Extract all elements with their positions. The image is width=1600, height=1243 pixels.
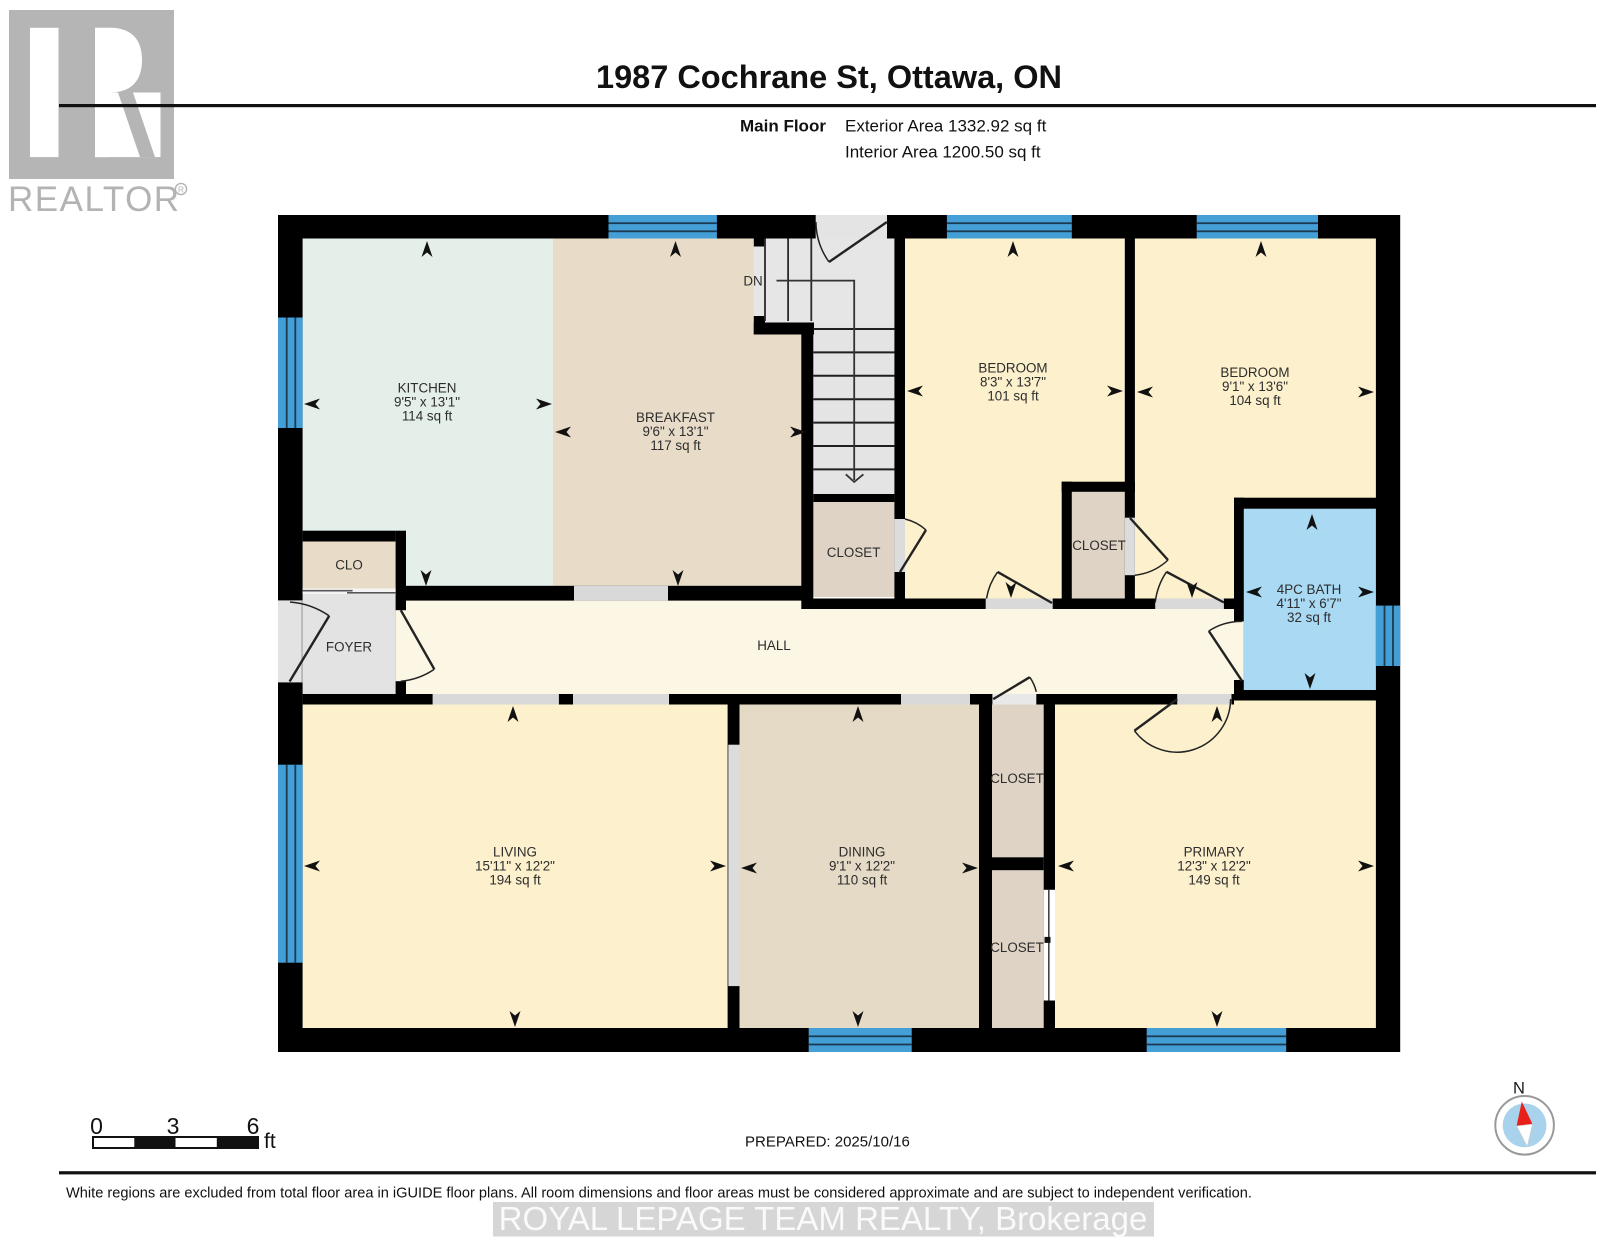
svg-text:8'3" x 13'7": 8'3" x 13'7" [980,375,1046,390]
svg-text:CLOSET: CLOSET [990,771,1044,786]
svg-text:3: 3 [167,1113,180,1139]
svg-text:CLO: CLO [335,558,363,573]
svg-text:9'1" x 12'2": 9'1" x 12'2" [829,859,895,874]
svg-text:LIVING: LIVING [493,845,537,860]
svg-text:0: 0 [90,1113,103,1139]
svg-text:114 sq ft: 114 sq ft [402,409,453,424]
svg-text:194 sq ft: 194 sq ft [489,873,541,888]
svg-text:ROYAL LEPAGE TEAM REALTY, Bro: ROYAL LEPAGE TEAM REALTY, Brokerage [499,1200,1148,1237]
svg-text:110 sq ft: 110 sq ft [837,873,888,888]
svg-text:CLOSET: CLOSET [990,940,1044,955]
svg-text:CLOSET: CLOSET [1072,538,1126,553]
svg-text:101 sq ft: 101 sq ft [987,389,1039,404]
svg-text:9'6" x 13'1": 9'6" x 13'1" [643,424,709,439]
svg-text:Exterior Area 1332.92 sq ft: Exterior Area 1332.92 sq ft [845,117,1047,136]
svg-text:CLOSET: CLOSET [827,545,881,560]
svg-text:6: 6 [247,1113,260,1139]
svg-text:117 sq ft: 117 sq ft [650,438,701,453]
svg-text:Main Floor: Main Floor [740,117,826,136]
svg-text:12'3" x 12'2": 12'3" x 12'2" [1177,859,1251,874]
svg-text:Interior Area 1200.50 sq ft: Interior Area 1200.50 sq ft [845,143,1041,162]
svg-text:32 sq ft: 32 sq ft [1287,610,1331,625]
svg-text:R: R [178,185,184,195]
svg-text:15'11" x 12'2": 15'11" x 12'2" [475,859,555,874]
svg-text:ft: ft [264,1130,276,1153]
svg-text:PREPARED: 2025/10/16: PREPARED: 2025/10/16 [745,1134,910,1151]
svg-text:KITCHEN: KITCHEN [398,381,457,396]
svg-text:HALL: HALL [757,638,791,653]
svg-text:1987 Cochrane St, Ottawa, ON: 1987 Cochrane St, Ottawa, ON [596,59,1062,95]
svg-text:9'5" x 13'1": 9'5" x 13'1" [394,395,460,410]
svg-text:149 sq ft: 149 sq ft [1188,873,1240,888]
svg-text:104 sq ft: 104 sq ft [1229,393,1281,408]
svg-text:DINING: DINING [839,845,886,860]
svg-text:DN: DN [743,274,762,289]
svg-text:9'1" x 13'6": 9'1" x 13'6" [1222,379,1288,394]
svg-text:4'11" x 6'7": 4'11" x 6'7" [1277,596,1342,611]
svg-text:PRIMARY: PRIMARY [1184,845,1245,860]
svg-text:BREAKFAST: BREAKFAST [636,410,715,425]
svg-text:N: N [1513,1080,1525,1098]
svg-text:FOYER: FOYER [326,640,372,655]
svg-text:4PC BATH: 4PC BATH [1277,582,1342,597]
svg-text:BEDROOM: BEDROOM [978,361,1047,376]
svg-text:REALTOR: REALTOR [8,180,181,219]
svg-text:BEDROOM: BEDROOM [1220,365,1289,380]
